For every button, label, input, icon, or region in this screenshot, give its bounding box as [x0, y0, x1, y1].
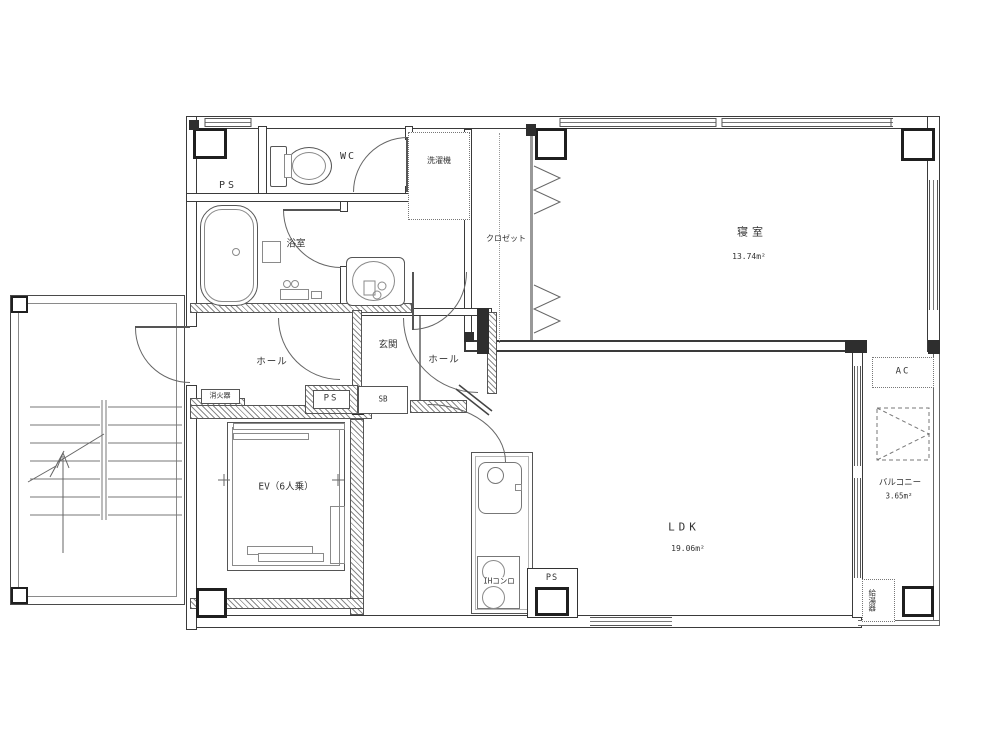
label-bedroom-area: 13.74m² [732, 253, 766, 261]
label-balcony: バルコニー [879, 479, 921, 488]
label-water-heater: 給湯器 [868, 589, 876, 612]
stair-corner-column-bl [11, 587, 28, 604]
bathtub-inner [204, 209, 254, 302]
washbasin-bowl [352, 261, 395, 301]
door-leaf-wc [406, 137, 408, 192]
closet-accordion-doors [534, 166, 560, 333]
window-bedroom-top-right [722, 118, 893, 127]
kitchen-faucet [487, 467, 504, 484]
window-bedroom-top-left [560, 118, 716, 127]
floor-plan-canvas: PS WC 洗濯機 浴室 クロゼット 寝室 13.74m² ホール 玄関 ホール… [0, 0, 1000, 743]
elevator-mech-bar2 [233, 433, 309, 440]
column-bottomright [902, 586, 934, 617]
kitchen-handle [515, 484, 522, 491]
junction-closet-top [526, 124, 536, 136]
wall-ev-right-hatch [350, 419, 364, 615]
column-ps-shaft [193, 128, 227, 159]
label-fire-extinguisher: 消火器 [210, 393, 231, 400]
window-top-small [205, 118, 251, 127]
label-ps-top: PS [219, 181, 237, 191]
wall-wc-bottom [186, 193, 413, 202]
wall-bottom [186, 615, 862, 628]
elevator-door-inner [258, 553, 324, 562]
label-ih-stove: IHコンロ [483, 577, 515, 585]
ih-burner-bottom [482, 586, 505, 609]
wall-bath-right-upper [340, 201, 348, 212]
column-bedroom-topleft [535, 128, 567, 160]
label-wc: WC [340, 152, 356, 162]
stair-corner-column-tl [11, 296, 28, 313]
evacuation-hatch [877, 408, 929, 460]
label-ps-bottom: PS [546, 574, 558, 583]
junction-southwall-right [845, 340, 867, 353]
label-ps-mid: PS [324, 395, 339, 404]
column-topright [901, 128, 935, 161]
label-shoe-box: SB [378, 395, 387, 403]
column-ps-bottom [535, 587, 569, 616]
window-balcony-upper [854, 366, 861, 466]
label-bathroom: 浴室 [286, 239, 305, 249]
label-ac: AC [896, 368, 911, 377]
window-balcony-lower [854, 478, 861, 578]
door-arc-ldk [428, 404, 506, 462]
label-ldk: LDK [668, 522, 700, 533]
label-entrance: 玄関 [378, 340, 397, 350]
label-closet: クロゼット [486, 235, 526, 243]
door-arc-front [278, 318, 340, 380]
bath-shower-unit [280, 289, 309, 300]
elevator-counterweight [330, 506, 345, 564]
wall-bedroom-south [464, 340, 864, 352]
balcony-railing-right [933, 345, 940, 626]
door-leaf-bathroom [283, 209, 341, 211]
column-ev-bottomleft [196, 588, 227, 618]
bath-shower-unit-small [311, 291, 322, 299]
junction-corner-topleft [189, 120, 199, 130]
bath-counter [262, 241, 281, 263]
junction-hall2-right [477, 308, 489, 354]
label-hall-right: ホール [428, 355, 460, 365]
toilet-seat-hinge [284, 154, 292, 178]
wall-wc-left [258, 126, 267, 196]
window-bedroom-right [929, 180, 938, 310]
door-arc-wc [353, 137, 408, 192]
water-heater-space [862, 579, 895, 622]
toilet-bowl-inner [292, 152, 326, 180]
window-ldk-bottom [590, 617, 672, 626]
label-balcony-area: 3.65m² [885, 492, 912, 500]
washing-machine-space [408, 132, 470, 220]
junction-balcony-topright [928, 340, 940, 354]
label-elevator: EV（6人乗） [258, 482, 313, 492]
label-washing-machine: 洗濯機 [427, 157, 451, 165]
bathtub-drain [232, 248, 240, 256]
label-bedroom: 寝室 [737, 227, 767, 238]
elevator-mech-bar1 [233, 423, 345, 430]
door-leaf-stairwell [135, 326, 190, 328]
label-ldk-area: 19.06m² [671, 545, 705, 553]
closet-track-line [530, 129, 533, 345]
label-hall-left: ホール [256, 357, 288, 367]
